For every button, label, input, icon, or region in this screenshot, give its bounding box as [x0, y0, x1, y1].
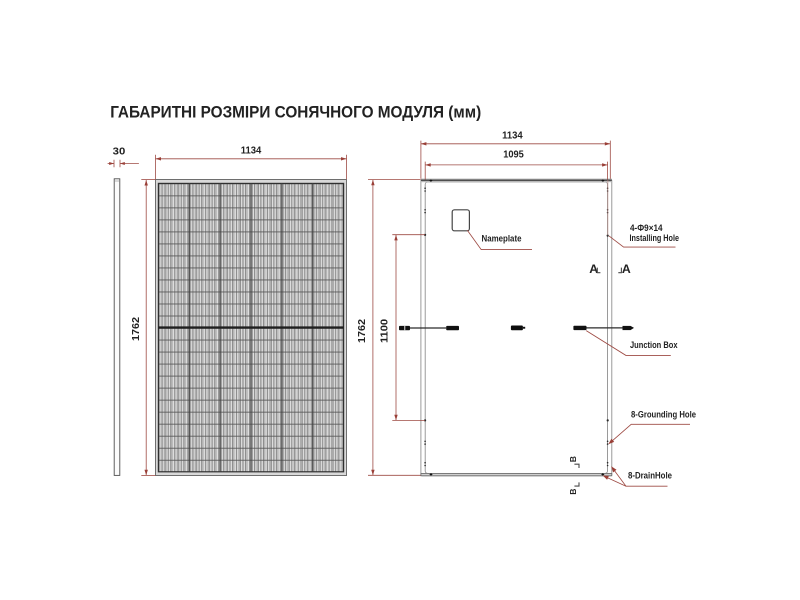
svg-text:1762: 1762: [131, 317, 142, 341]
svg-text:8-DrainHole: 8-DrainHole: [628, 470, 672, 480]
svg-text:ГАБАРИТНІ РОЗМІРИ СОНЯЧНОГО МО: ГАБАРИТНІ РОЗМІРИ СОНЯЧНОГО МОДУЛЯ (мм): [110, 104, 481, 122]
svg-text:1095: 1095: [503, 149, 524, 160]
svg-text:B: B: [569, 488, 578, 494]
svg-text:Installing Hole: Installing Hole: [630, 233, 680, 243]
svg-text:1762: 1762: [357, 319, 368, 343]
svg-text:Nameplate: Nameplate: [482, 234, 522, 244]
svg-text:30: 30: [113, 147, 126, 158]
svg-text:1100: 1100: [379, 319, 390, 343]
svg-text:A: A: [622, 262, 631, 276]
svg-text:1134: 1134: [241, 145, 262, 156]
svg-text:8-Grounding Hole: 8-Grounding Hole: [631, 410, 696, 420]
svg-text:B: B: [569, 456, 578, 462]
svg-text:1134: 1134: [502, 130, 523, 141]
svg-text:Junction Box: Junction Box: [630, 340, 678, 350]
svg-text:4-Ф9×14: 4-Ф9×14: [630, 223, 663, 233]
